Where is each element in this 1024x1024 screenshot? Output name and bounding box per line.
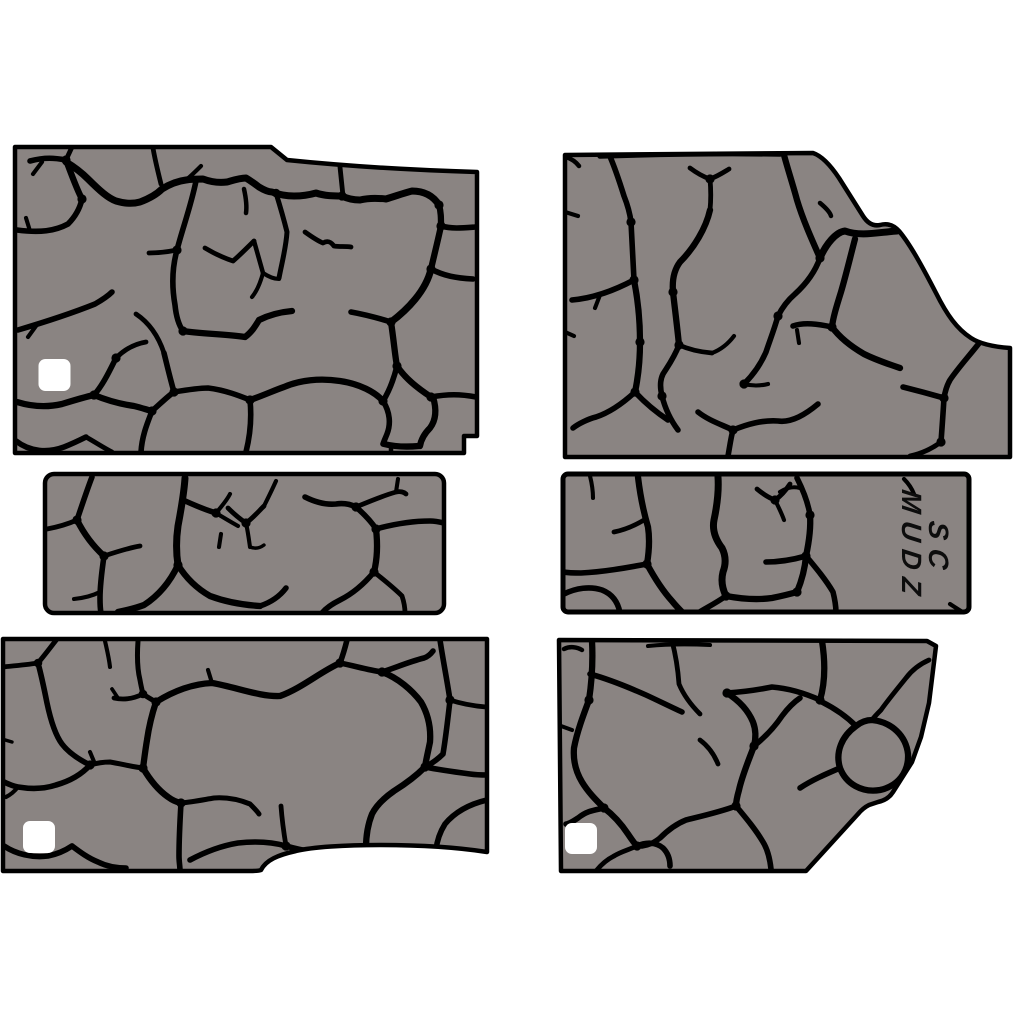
svg-text:MUDZ: MUDZ [896, 488, 927, 605]
